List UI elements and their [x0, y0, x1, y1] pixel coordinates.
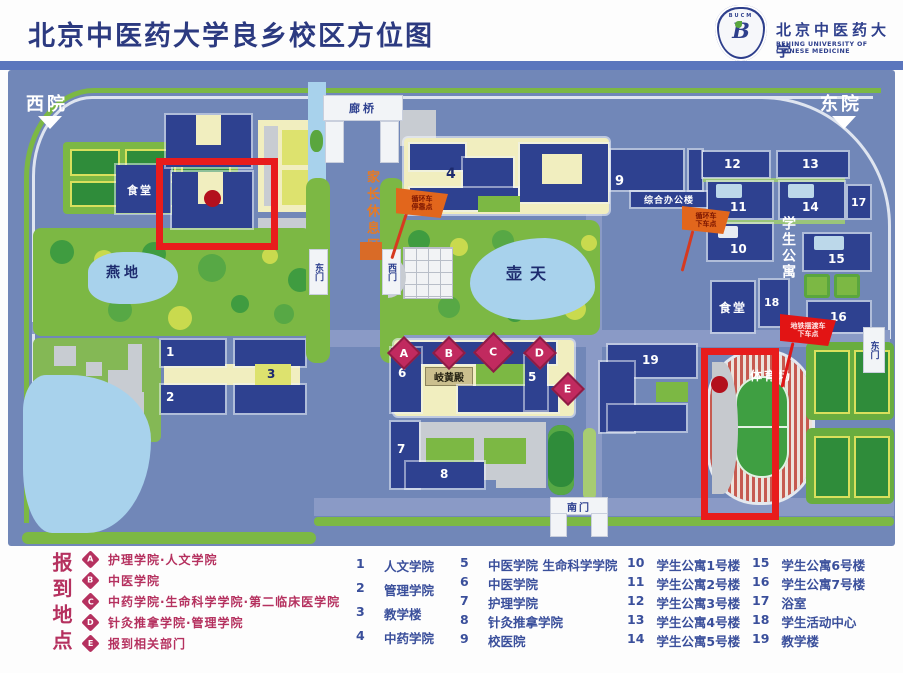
building-19-number: 19: [642, 353, 659, 367]
legend-label: 教学楼: [781, 631, 819, 650]
bridge-label: 廊桥: [349, 100, 377, 116]
checkin-diamond-B-icon: B: [81, 571, 99, 589]
south-gate-post: [592, 514, 607, 536]
legend-label: 学生公寓7号楼: [781, 574, 865, 593]
seal-inner: BUCM B: [719, 9, 763, 57]
checkin-key: B: [87, 576, 93, 585]
checkin-key: D: [87, 618, 94, 627]
east-canteen-label: 食堂: [719, 299, 747, 316]
checkin-legend-title: 报到地点: [47, 552, 75, 670]
university-seal-icon: BUCM B: [715, 5, 767, 61]
checkin-item-D: D 针灸推拿学院·管理学院: [84, 614, 244, 631]
metro-dropoff-line2: 下车点: [798, 330, 819, 338]
legend-num: 8: [460, 612, 476, 631]
corridor-east-gate-label: 东门: [312, 263, 325, 281]
legend-num: 3: [356, 604, 372, 623]
building-18-number: 18: [764, 296, 779, 309]
legend-num: 4: [356, 628, 372, 647]
building-11-number: 11: [730, 200, 747, 214]
legend-num: 5: [460, 555, 476, 574]
temple-structure: [86, 362, 102, 376]
legend-row-12: 12学生公寓3号楼: [627, 593, 740, 612]
building-12-number: 12: [724, 157, 741, 171]
shuttle-dropoff-line1: 循环车: [696, 212, 717, 220]
shuttle-dropoff-line2: 下车点: [696, 220, 717, 228]
building-4-number: 4: [446, 166, 456, 182]
legend-label: 中药学院: [384, 628, 434, 647]
west-pale-block-1: [282, 130, 310, 165]
checkin-label: 中药学院·生命科学学院·第二临床医学院: [108, 593, 340, 610]
campus-map-page: 北京中医药大学良乡校区方位图 BUCM B 北京中医药大学 BEIJING UN…: [0, 0, 903, 673]
legend-row-6: 6中医学院: [460, 574, 538, 593]
checkin-item-E: E 报到相关部门: [84, 635, 186, 652]
qihuang-hall: 岐黄殿: [426, 368, 472, 385]
header-divider-bar: [0, 61, 903, 70]
shuttle-stop-line2: 停靠点: [412, 203, 433, 211]
metro-dropoff-line1: 地铁摆渡车: [791, 322, 826, 330]
district-west-label: 西院: [26, 90, 68, 116]
east-gate: 东门: [864, 328, 884, 372]
marker-A-letter: A: [400, 346, 409, 359]
marker-C-letter: C: [489, 346, 497, 359]
building-15-number: 15: [828, 252, 845, 266]
checkin-key: C: [88, 597, 94, 606]
legend-num: 6: [460, 574, 476, 593]
legend-num: 16: [752, 574, 769, 593]
legend-num: 19: [752, 631, 769, 650]
bridge-pillar: [326, 122, 343, 162]
tennis-court: [814, 436, 850, 498]
building-14-number: 14: [802, 200, 819, 214]
stream-greens: [310, 130, 323, 152]
legend-label: 管理学院: [384, 580, 434, 599]
campus-map: 西院 东院 食堂 燕地: [8, 70, 895, 546]
legend-label: 学生活动中心: [781, 612, 856, 631]
building-9-number: 9: [615, 174, 624, 189]
building-1-number: 1: [166, 345, 174, 359]
south-lawn: [426, 438, 474, 464]
building-15-atrium: [814, 236, 844, 250]
legend-row-10: 10学生公寓1号楼: [627, 555, 740, 574]
checkin-item-A: A 护理学院·人文学院: [84, 551, 218, 568]
building-2-number: 2: [166, 390, 174, 404]
checkin-diamond-E-icon: E: [81, 634, 99, 652]
park-trees: [50, 240, 74, 264]
legend-label: 教学楼: [384, 604, 422, 623]
tennis-court: [854, 436, 890, 498]
west-hall-north-court: [196, 115, 221, 145]
legend-row-8: 8针灸推拿学院: [460, 612, 563, 631]
district-east-arrow-icon: [832, 116, 856, 129]
legend-num: 11: [627, 574, 644, 593]
legend-num: 18: [752, 612, 769, 631]
legend-num: 10: [627, 555, 644, 574]
checkin-diamond-A-icon: A: [81, 550, 99, 568]
building-17-number: 17: [851, 196, 866, 209]
legend-num: 12: [627, 593, 644, 612]
marker-D-letter: D: [535, 346, 544, 359]
corridor-bridge: 廊桥: [324, 96, 402, 120]
legend-num: 13: [627, 612, 644, 631]
legend-row-4: 4中药学院: [356, 628, 434, 647]
legend-row-9: 9校医院: [460, 631, 526, 650]
legend-label: 学生公寓5号楼: [656, 631, 740, 650]
south-gate: 南门: [551, 498, 607, 514]
building-4-center-wing: [463, 158, 513, 192]
district-west-arrow-icon: [38, 116, 62, 129]
legend-num: 17: [752, 593, 769, 612]
temple-structure: [128, 344, 142, 384]
tree-row: [548, 425, 574, 495]
district-east-label: 东院: [820, 90, 862, 116]
rest-area-block: [360, 242, 382, 260]
legend-row-19: 19教学楼: [752, 631, 819, 650]
legend-label: 学生公寓4号楼: [656, 612, 740, 631]
checkin-key: E: [88, 639, 93, 648]
legend-label: 校医院: [488, 631, 526, 650]
legend-row-14: 14学生公寓5号楼: [627, 631, 740, 650]
tennis-court: [814, 350, 850, 414]
leaf-icon: [735, 21, 742, 28]
legend-label: 人文学院: [384, 556, 434, 575]
legend-row-11: 11学生公寓2号楼: [627, 574, 740, 593]
location-dot-west: [204, 190, 221, 207]
qihuang-hall-label: 岐黄殿: [434, 369, 464, 384]
building-4-east-court: [542, 154, 582, 184]
legend-row-18: 18学生活动中心: [752, 612, 856, 631]
south-gate-label: 南门: [567, 499, 591, 514]
legend-row-3: 3教学楼: [356, 604, 422, 623]
university-name-en: BEIJING UNIVERSITY OF CHINESE MEDICINE: [776, 41, 903, 55]
east-gate-label: 东门: [868, 341, 881, 359]
checkin-diamond-C-icon: C: [81, 592, 99, 610]
building-9-annex: [689, 150, 702, 190]
building-13-number: 13: [802, 157, 819, 171]
legend-num: 15: [752, 555, 769, 574]
legend-row-15: 15学生公寓6号楼: [752, 555, 865, 574]
corridor-west-gate-label: 西门: [385, 263, 398, 281]
legend-row-13: 13学生公寓4号楼: [627, 612, 740, 631]
building-1-east-wing: [235, 340, 305, 366]
hedge-strip: [583, 428, 596, 500]
checkin-label: 针灸推拿学院·管理学院: [108, 614, 244, 631]
legend-label: 学生公寓3号楼: [656, 593, 740, 612]
corridor-east-gate: 东门: [310, 250, 327, 294]
southwest-green-strip: [22, 532, 316, 544]
legend-num: 2: [356, 580, 372, 599]
building-11-atrium: [716, 184, 742, 198]
building-4-west-wing: [410, 144, 465, 170]
building-5-number: 5: [528, 370, 536, 384]
temple-structure: [54, 346, 76, 366]
legend-row-5: 5中医学院 生命科学学院: [460, 555, 617, 574]
checkin-diamond-D-icon: D: [81, 613, 99, 631]
marker-E-letter: E: [564, 382, 572, 395]
legend-label: 针灸推拿学院: [488, 612, 563, 631]
admin-building-bar: 综合办公楼: [631, 192, 707, 207]
legend-row-7: 7护理学院: [460, 593, 538, 612]
south-gate-post: [551, 514, 566, 536]
building-19-lawn: [656, 382, 688, 402]
page-title: 北京中医药大学良乡校区方位图: [28, 14, 434, 53]
legend-label: 学生公寓6号楼: [781, 555, 865, 574]
legend-label: 学生公寓1号楼: [656, 555, 740, 574]
building-7-number: 7: [397, 442, 405, 456]
legend-num: 7: [460, 593, 476, 612]
legend-row-17: 17浴室: [752, 593, 806, 612]
legend-num: 1: [356, 556, 372, 575]
lattice-pavilion: [404, 248, 452, 298]
checkin-key: A: [87, 555, 93, 564]
highlight-box-stadium: [701, 348, 779, 520]
bridge-pillar: [381, 122, 398, 162]
legend-num: 14: [627, 631, 644, 650]
east-canteen-building: 食堂: [712, 282, 754, 332]
checkin-item-B: B 中医学院: [84, 572, 160, 589]
west-canteen-label: 食堂: [127, 182, 153, 198]
southwest-lake: [23, 375, 151, 533]
legend-num: 9: [460, 631, 476, 650]
location-dot-stadium: [711, 376, 728, 393]
building-14-atrium: [788, 184, 814, 198]
legend-label: 学生公寓2号楼: [656, 574, 740, 593]
legend-label: 中医学院: [488, 574, 538, 593]
legend-label: 护理学院: [488, 593, 538, 612]
garden-plot: [70, 181, 120, 208]
building-10-number: 10: [730, 242, 747, 256]
yandi-garden-label: 燕地: [106, 262, 142, 282]
building-4-lawn: [478, 196, 520, 212]
building-19-south: [608, 405, 686, 431]
teaching-inner-lawn: [476, 364, 526, 386]
south-lawn-east: [484, 438, 526, 464]
building-3-number: 3: [267, 367, 275, 381]
building-2-east-wing: [235, 385, 305, 413]
flag-pole: [681, 230, 695, 271]
admin-building-label: 综合办公楼: [644, 193, 694, 206]
legend-label: 浴室: [781, 593, 806, 612]
building-8-number: 8: [440, 467, 448, 481]
checkin-label: 护理学院·人文学院: [108, 551, 218, 568]
marker-B-letter: B: [445, 346, 453, 359]
legend-row-2: 2管理学院: [356, 580, 434, 599]
checkin-label: 中医学院: [108, 572, 160, 589]
legend-label: 中医学院 生命科学学院: [488, 555, 617, 574]
checkin-label: 报到相关部门: [108, 635, 186, 652]
hutian-garden-label: 壶天: [506, 260, 554, 284]
legend-row-1: 1人文学院: [356, 556, 434, 575]
checkin-item-C: C 中药学院·生命科学学院·第二临床医学院: [84, 593, 340, 610]
shuttle-stop-line1: 循环车: [412, 195, 433, 203]
garden-plot: [70, 149, 120, 176]
legend-row-16: 16学生公寓7号楼: [752, 574, 865, 593]
east-green-square: [804, 274, 830, 298]
east-green-square: [834, 274, 860, 298]
